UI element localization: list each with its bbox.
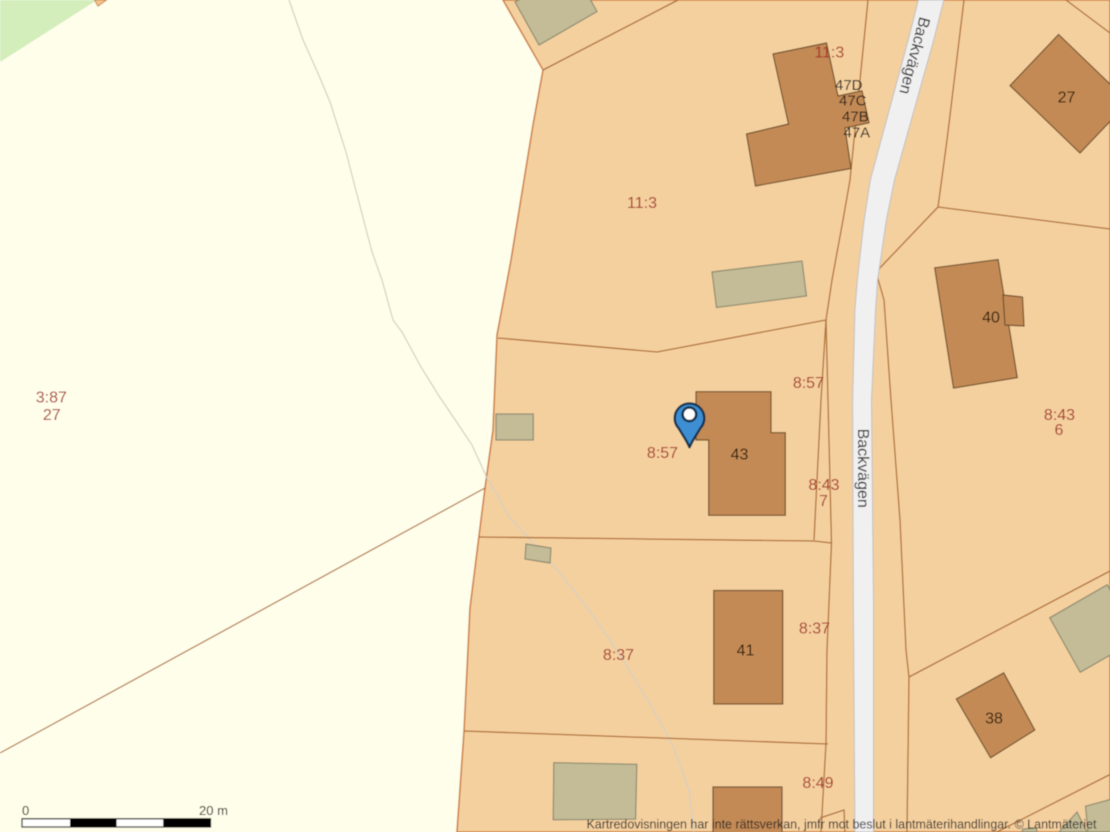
svg-text:11:3: 11:3 xyxy=(814,44,844,61)
svg-text:47C: 47C xyxy=(839,93,867,110)
svg-text:47B: 47B xyxy=(842,109,869,126)
svg-text:8:57: 8:57 xyxy=(793,375,824,392)
svg-text:8:37: 8:37 xyxy=(603,647,634,664)
svg-text:43: 43 xyxy=(731,447,749,464)
svg-text:8:49: 8:49 xyxy=(802,775,833,792)
svg-text:Kartredovisningen har inte rät: Kartredovisningen har inte rättsverkan, … xyxy=(587,817,1097,831)
svg-text:47D: 47D xyxy=(835,77,863,94)
svg-text:27: 27 xyxy=(43,407,61,424)
svg-text:27: 27 xyxy=(1058,90,1076,107)
svg-text:3:87: 3:87 xyxy=(36,390,67,407)
svg-text:Backvägen: Backvägen xyxy=(854,429,871,508)
svg-text:41: 41 xyxy=(737,643,755,660)
svg-text:40: 40 xyxy=(982,310,1000,327)
svg-text:8:43: 8:43 xyxy=(808,477,839,494)
svg-text:8:57: 8:57 xyxy=(647,445,678,462)
svg-text:7: 7 xyxy=(819,493,828,510)
svg-text:38: 38 xyxy=(985,711,1003,728)
svg-text:8:37: 8:37 xyxy=(799,621,830,638)
svg-text:20 m: 20 m xyxy=(199,803,228,818)
svg-text:6: 6 xyxy=(1055,422,1064,439)
svg-text:11:3: 11:3 xyxy=(627,195,657,212)
svg-text:47A: 47A xyxy=(844,124,871,141)
svg-text:0: 0 xyxy=(22,803,29,818)
